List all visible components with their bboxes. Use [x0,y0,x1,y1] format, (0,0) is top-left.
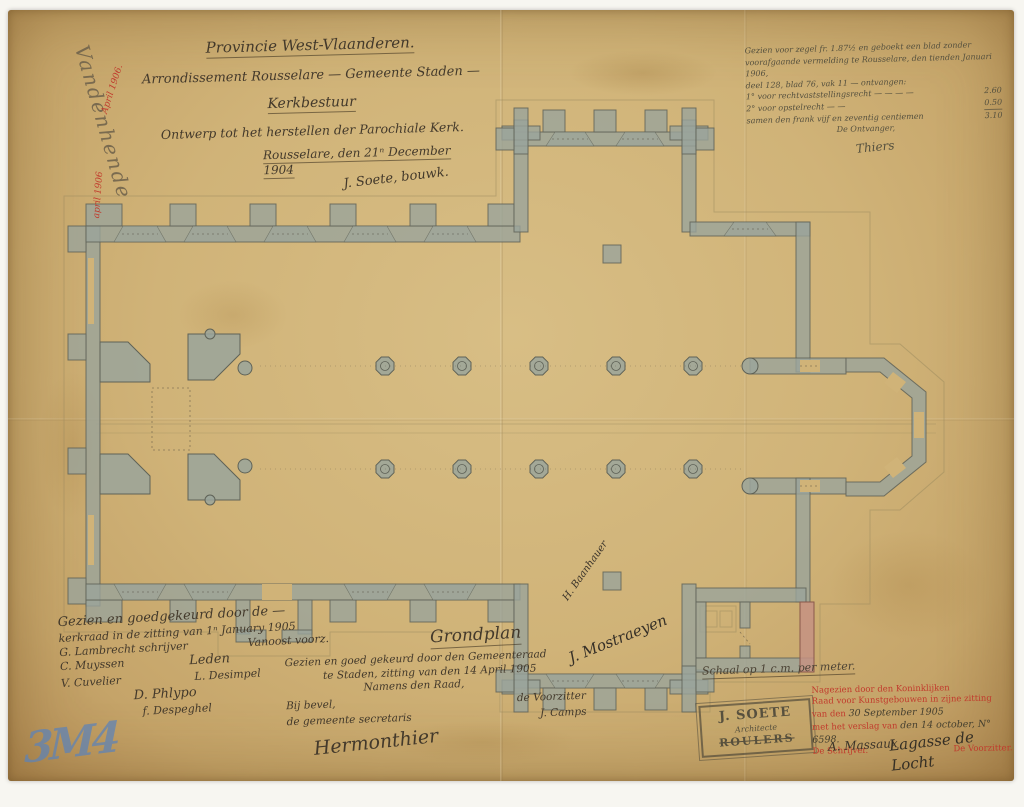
title-province: Provincie West-Vlaanderen. [205,33,414,58]
title-block: Provincie West-Vlaanderen. Arrondissemen… [140,32,484,202]
registration-note: Gezien voor zegel fr. 1.87½ en geboekt e… [745,39,1004,160]
gemeenteraad-label: Bij bevel, [286,698,336,713]
title-arrondissement: Arrondissement Rousselare — Gemeente Sta… [141,63,481,89]
commission-line-hand: 30 September 1905 [848,706,943,719]
scanned-document: Provincie West-Vlaanderen. Arrondissemen… [0,0,1024,807]
registration-amount-total: 3.10 [984,108,1002,121]
tower-piers [100,329,252,505]
commission-line-red: met het verslag van [812,721,898,732]
registration-amount: 0.50 [984,97,1002,109]
kerkraad-signature: Vanoost voorz. [247,632,329,651]
nave-columns [376,357,758,494]
architect-stamp: J. SOETE Architecte ROULERS [698,698,813,757]
title-authority: Kerkbestuur [267,94,356,114]
commission-line-red: van den [812,709,846,720]
gemeenteraad-label: de Voorzitter [517,690,587,706]
registration-amount: 2.60 [984,85,1002,97]
gemeenteraad-label: de gemeente secretaris [286,711,411,729]
window-splays [114,132,776,688]
title-subject: Ontwerp tot het herstellen der Parochial… [142,118,482,143]
registration-line-text: 2° voor opstelrecht — — [746,102,845,114]
gemeenteraad-approval-block: Gezien en goed gekeurd door den Gemeente… [284,647,587,754]
